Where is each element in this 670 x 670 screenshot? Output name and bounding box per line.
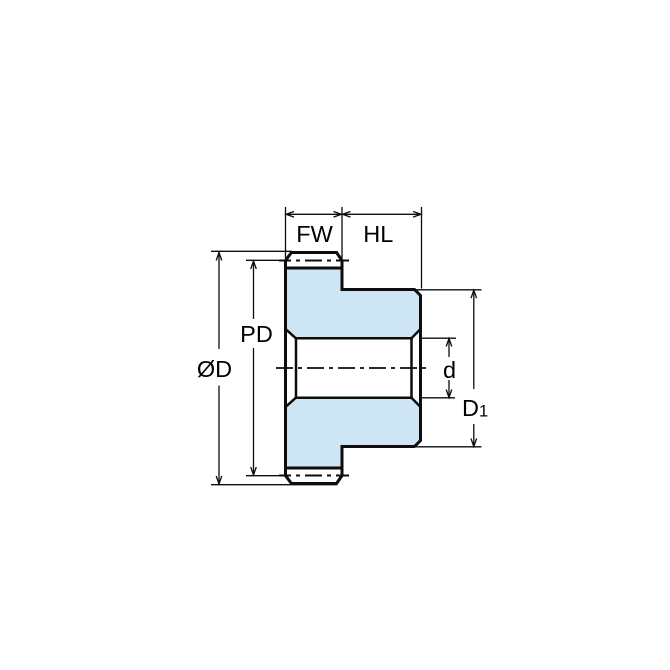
svg-text:HL: HL <box>363 221 393 247</box>
svg-text:d: d <box>443 357 456 383</box>
svg-text:PD: PD <box>240 321 273 347</box>
svg-text:ØD: ØD <box>197 356 232 382</box>
svg-text:FW: FW <box>296 221 333 247</box>
svg-text:D1: D1 <box>462 395 488 421</box>
